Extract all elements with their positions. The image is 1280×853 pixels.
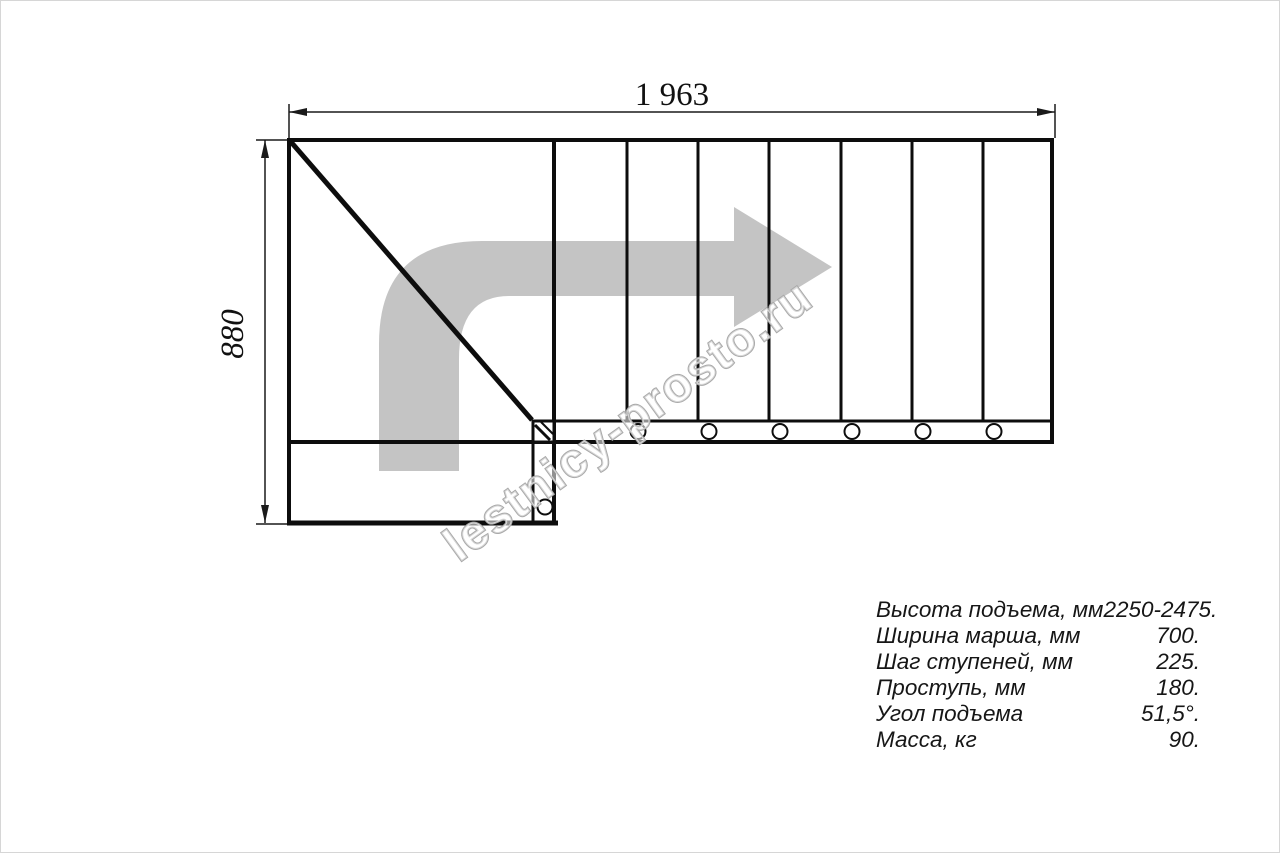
width-arrow-left-icon	[289, 108, 307, 116]
spec-label: Шаг ступеней, мм	[876, 649, 1073, 675]
spec-row-mass: Масса, кг 90.	[876, 727, 1200, 753]
spec-row-flight-width: Ширина марша, мм 700.	[876, 623, 1200, 649]
spec-label: Проступь, мм	[876, 675, 1026, 701]
spec-value: 51,5°.	[1141, 701, 1200, 727]
spec-row-step-pitch: Шаг ступеней, мм 225.	[876, 649, 1200, 675]
spec-row-height: Высота подъема, мм 2250-2475.	[876, 597, 1200, 623]
spec-value: 225.	[1156, 649, 1200, 675]
spec-value: 700.	[1156, 623, 1200, 649]
spec-label: Угол подъема	[876, 701, 1023, 727]
spec-row-angle: Угол подъема 51,5°.	[876, 701, 1200, 727]
height-arrow-bottom-icon	[261, 505, 269, 523]
height-dimension-label: 880	[215, 309, 251, 359]
spec-value: 180.	[1156, 675, 1200, 701]
spec-table: Высота подъема, мм 2250-2475. Ширина мар…	[876, 597, 1200, 753]
spec-value: 2250-2475.	[1103, 597, 1217, 623]
spec-value: 90.	[1169, 727, 1200, 753]
stringer-hole-2	[702, 424, 717, 439]
height-arrow-top-icon	[261, 140, 269, 158]
spec-label: Масса, кг	[876, 727, 977, 753]
stringer-hole-5	[916, 424, 931, 439]
spec-label: Ширина марша, мм	[876, 623, 1080, 649]
stair-drawing-page: 1 963 880 lestnicy-prosto.ru Высота подъ…	[0, 0, 1280, 853]
stringer-hole-3	[773, 424, 788, 439]
stringer-hole-4	[845, 424, 860, 439]
spec-label: Высота подъема, мм	[876, 597, 1103, 623]
width-dimension-label: 1 963	[635, 77, 709, 113]
dimensions	[256, 104, 1055, 524]
stringer-hole-6	[987, 424, 1002, 439]
width-arrow-right-icon	[1037, 108, 1055, 116]
spec-row-tread: Проступь, мм 180.	[876, 675, 1200, 701]
